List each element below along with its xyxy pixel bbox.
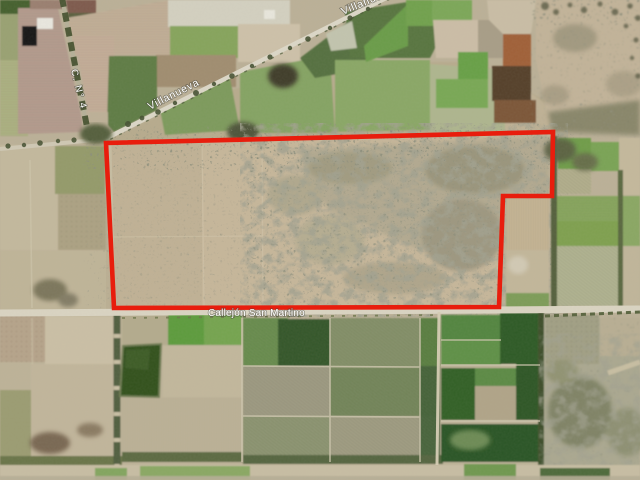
svg-text:Callejón San Martino: Callejón San Martino: [208, 308, 305, 319]
